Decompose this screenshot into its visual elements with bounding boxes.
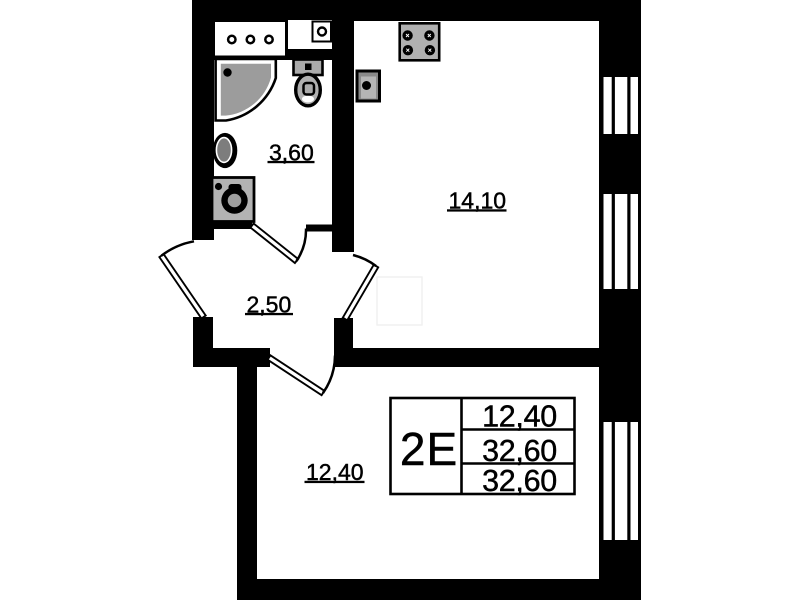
svg-text:2Е: 2Е	[400, 423, 458, 475]
svg-text:32,60: 32,60	[482, 464, 557, 498]
svg-text:12,40: 12,40	[482, 400, 557, 434]
svg-text:32,60: 32,60	[482, 434, 557, 468]
